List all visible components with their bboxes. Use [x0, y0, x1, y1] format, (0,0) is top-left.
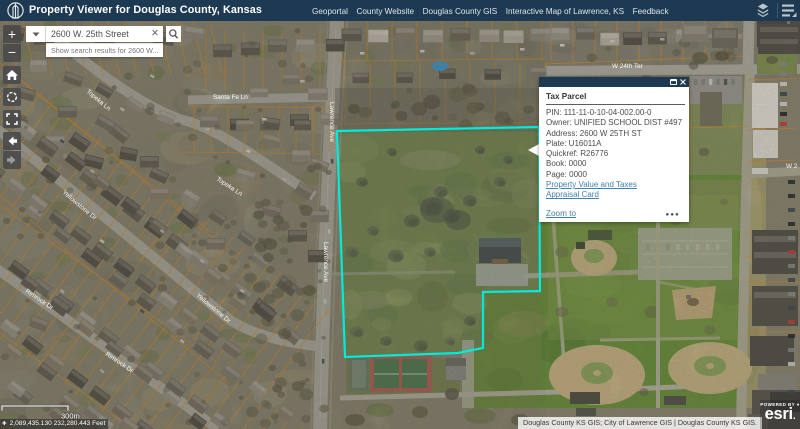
- svg-text:W 24th Ter: W 24th Ter: [612, 63, 644, 70]
- svg-text:Lawrence Ave: Lawrence Ave: [328, 102, 335, 142]
- svg-text:Santa Fe Ln: Santa Fe Ln: [213, 94, 248, 101]
- svg-text:Lawrence Ave: Lawrence Ave: [322, 242, 329, 282]
- svg-text:W 2: W 2: [786, 163, 798, 170]
